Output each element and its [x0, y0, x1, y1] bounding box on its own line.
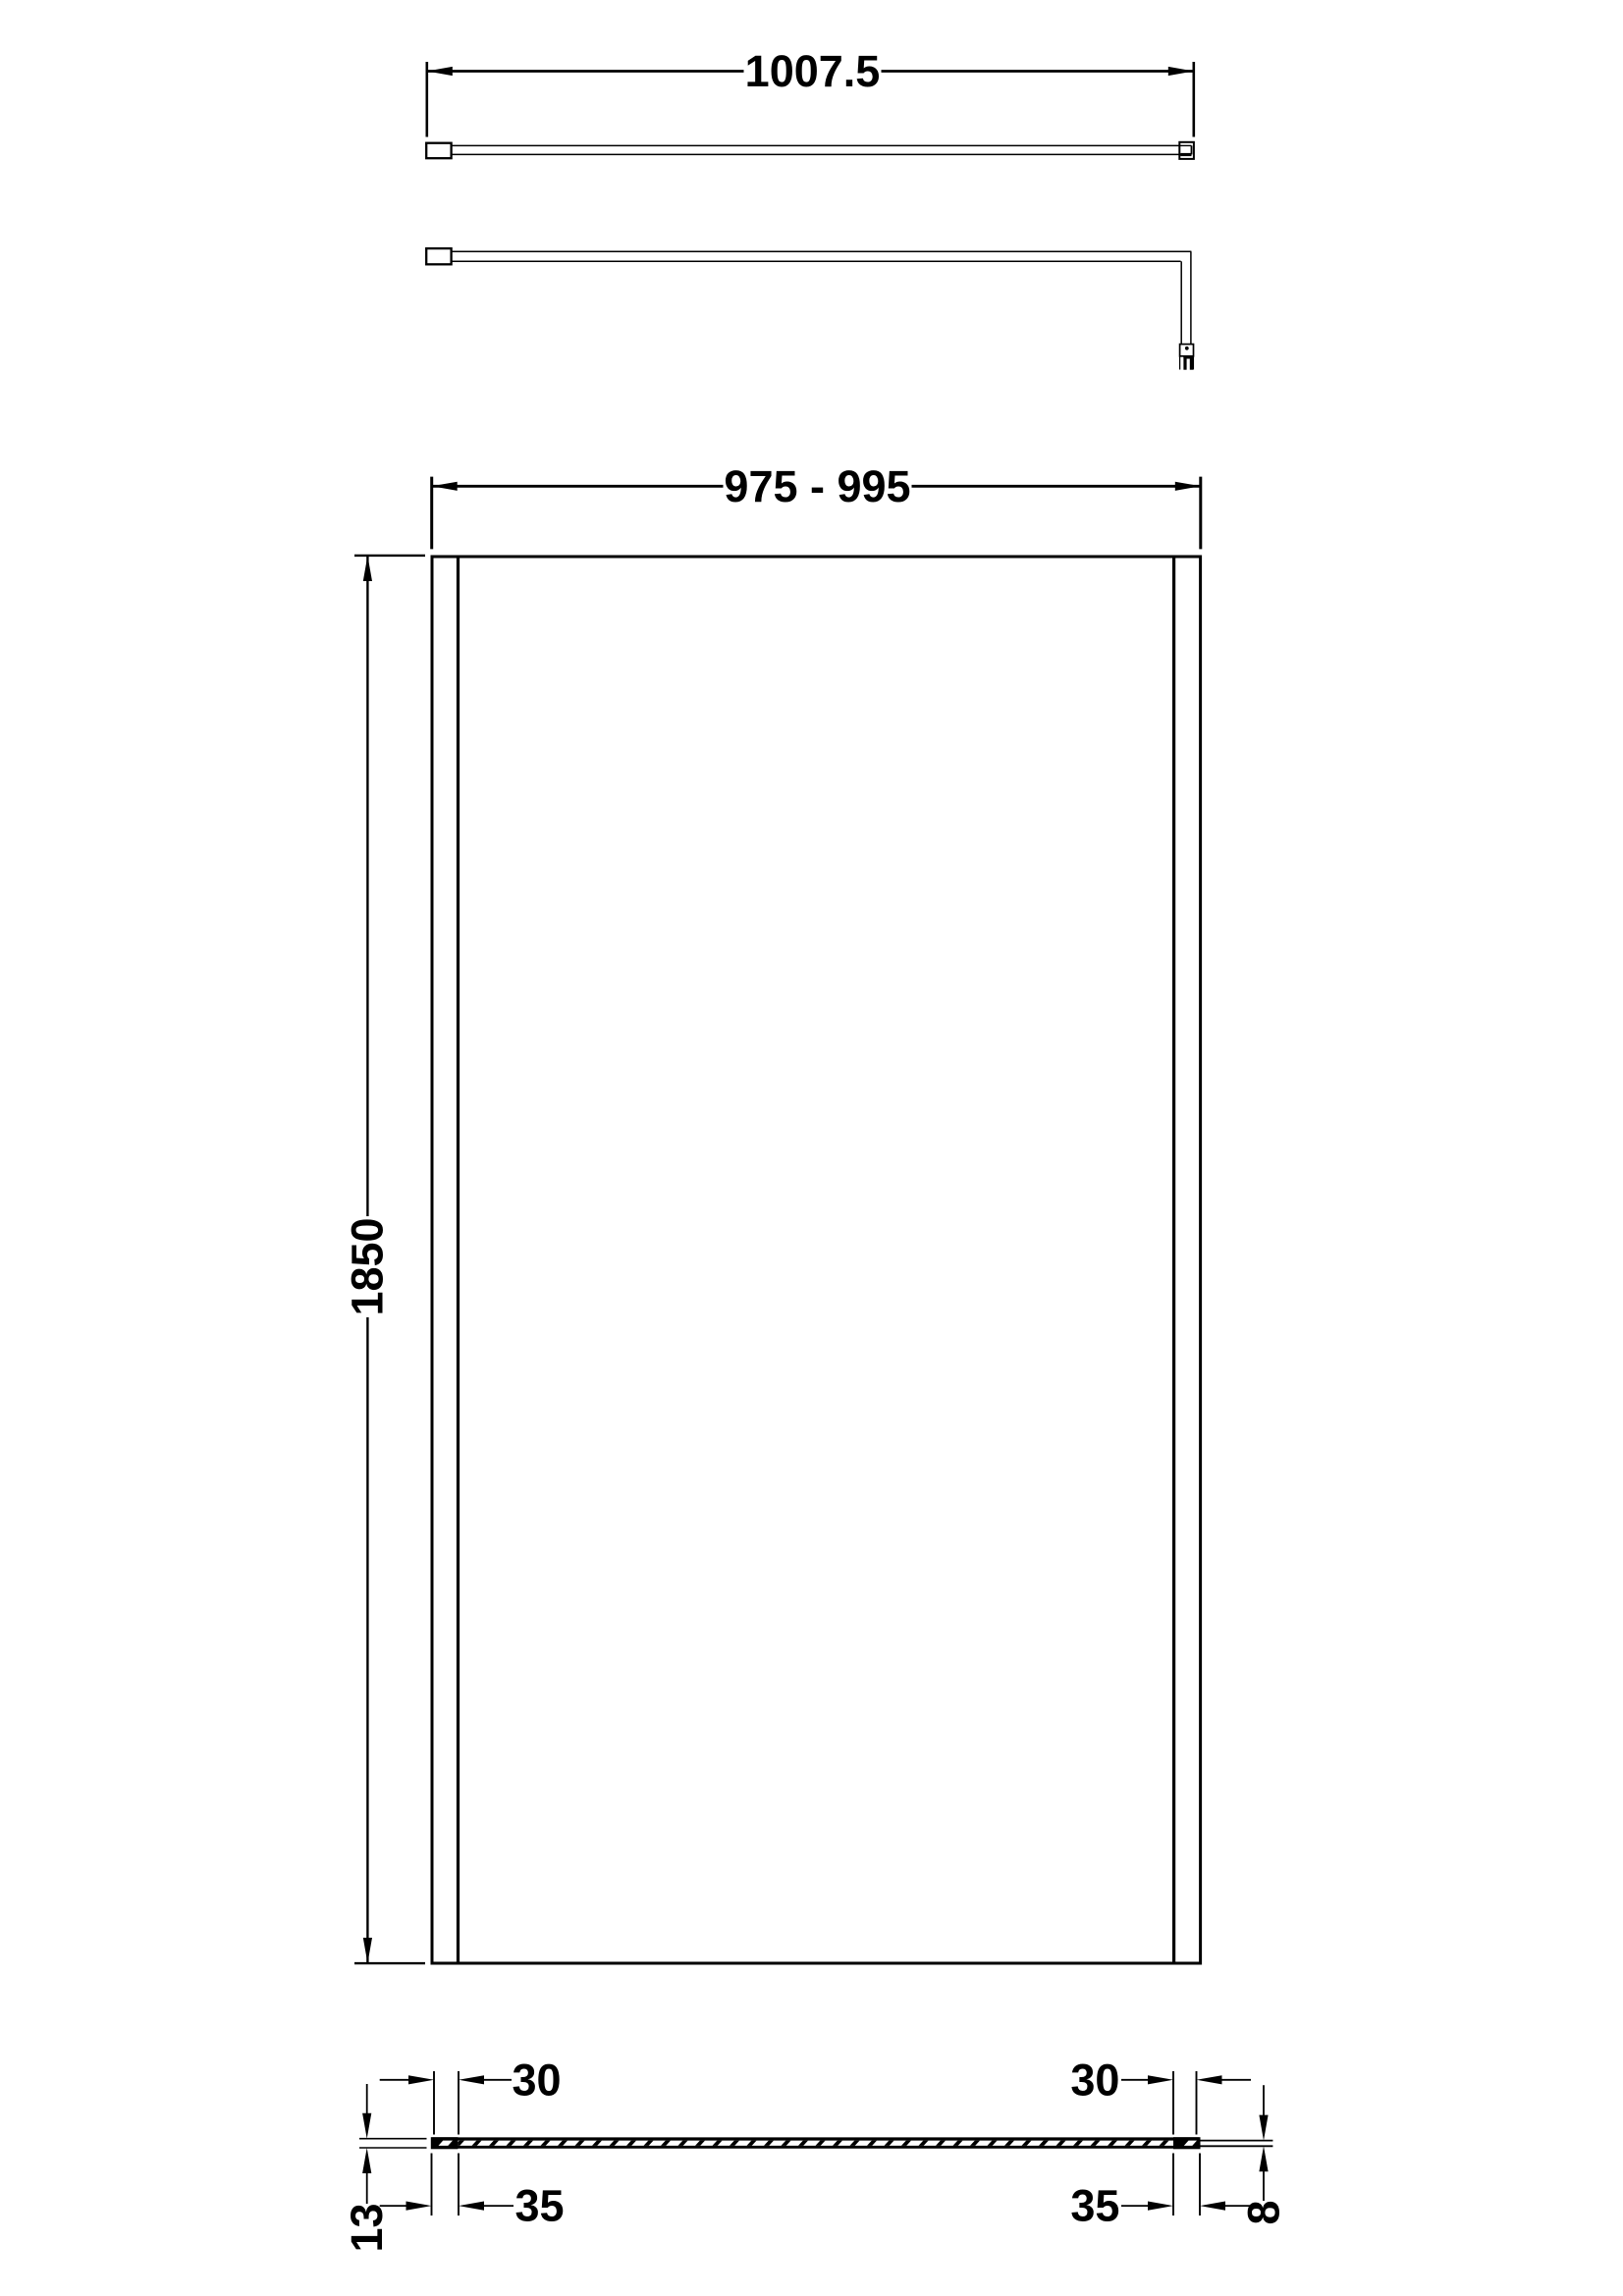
svg-text:1850: 1850 — [343, 1217, 393, 1315]
svg-text:35: 35 — [514, 2181, 564, 2231]
svg-text:30: 30 — [512, 2055, 561, 2105]
svg-text:13: 13 — [342, 2203, 392, 2252]
svg-text:8: 8 — [1239, 2200, 1289, 2224]
svg-text:35: 35 — [1070, 2181, 1119, 2231]
svg-text:30: 30 — [1070, 2055, 1119, 2105]
svg-text:1007.5: 1007.5 — [745, 46, 881, 96]
svg-text:975 - 995: 975 - 995 — [724, 461, 910, 511]
